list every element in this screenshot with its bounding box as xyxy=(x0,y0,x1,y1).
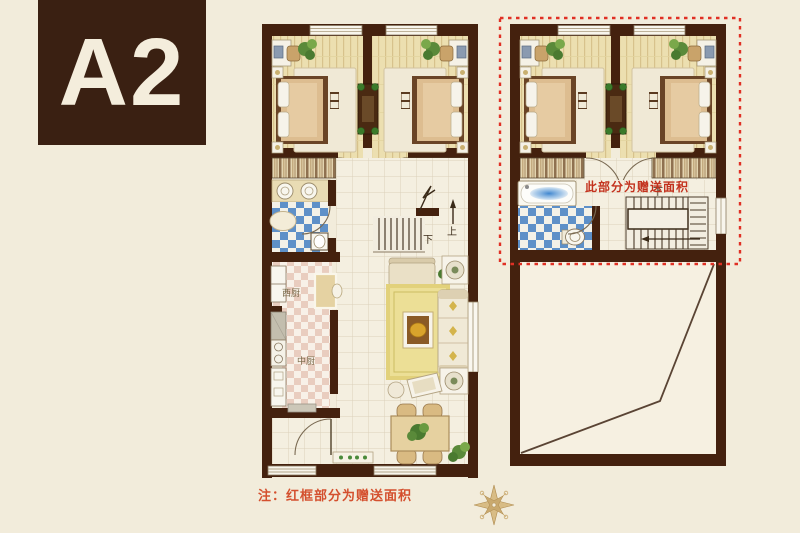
empty-room xyxy=(510,262,726,466)
window-bottom-right xyxy=(374,466,436,475)
gift-area-note: 注：红框部分为赠送面积 xyxy=(258,485,412,504)
sliding-door-right xyxy=(468,302,478,372)
window-right-wall xyxy=(716,198,726,234)
shoe-cabinet xyxy=(333,452,373,463)
armchair xyxy=(389,263,435,286)
unit-left: 西厨 中厨 下 上 xyxy=(262,24,478,478)
bathroom-left-unit xyxy=(270,180,336,252)
west-kitchen-label: 西厨 xyxy=(282,288,300,299)
kitchen: 西厨 中厨 xyxy=(262,262,342,418)
living-room xyxy=(388,256,468,398)
stairs-down-label: 下 xyxy=(423,235,433,246)
unit-right: 下 此部分为赠送面积 xyxy=(500,18,740,466)
cabinet xyxy=(271,368,286,406)
compass-icon xyxy=(474,485,514,525)
chinese-kitchen-label: 中厨 xyxy=(297,355,315,367)
floorplan: 西厨 中厨 下 上 xyxy=(0,0,800,533)
toilet xyxy=(566,229,585,245)
stove xyxy=(271,340,286,366)
window-bottom-left xyxy=(268,466,316,475)
gift-area-label: 此部分为赠送面积 xyxy=(585,179,689,194)
stairs-up-label: 上 xyxy=(447,226,457,238)
